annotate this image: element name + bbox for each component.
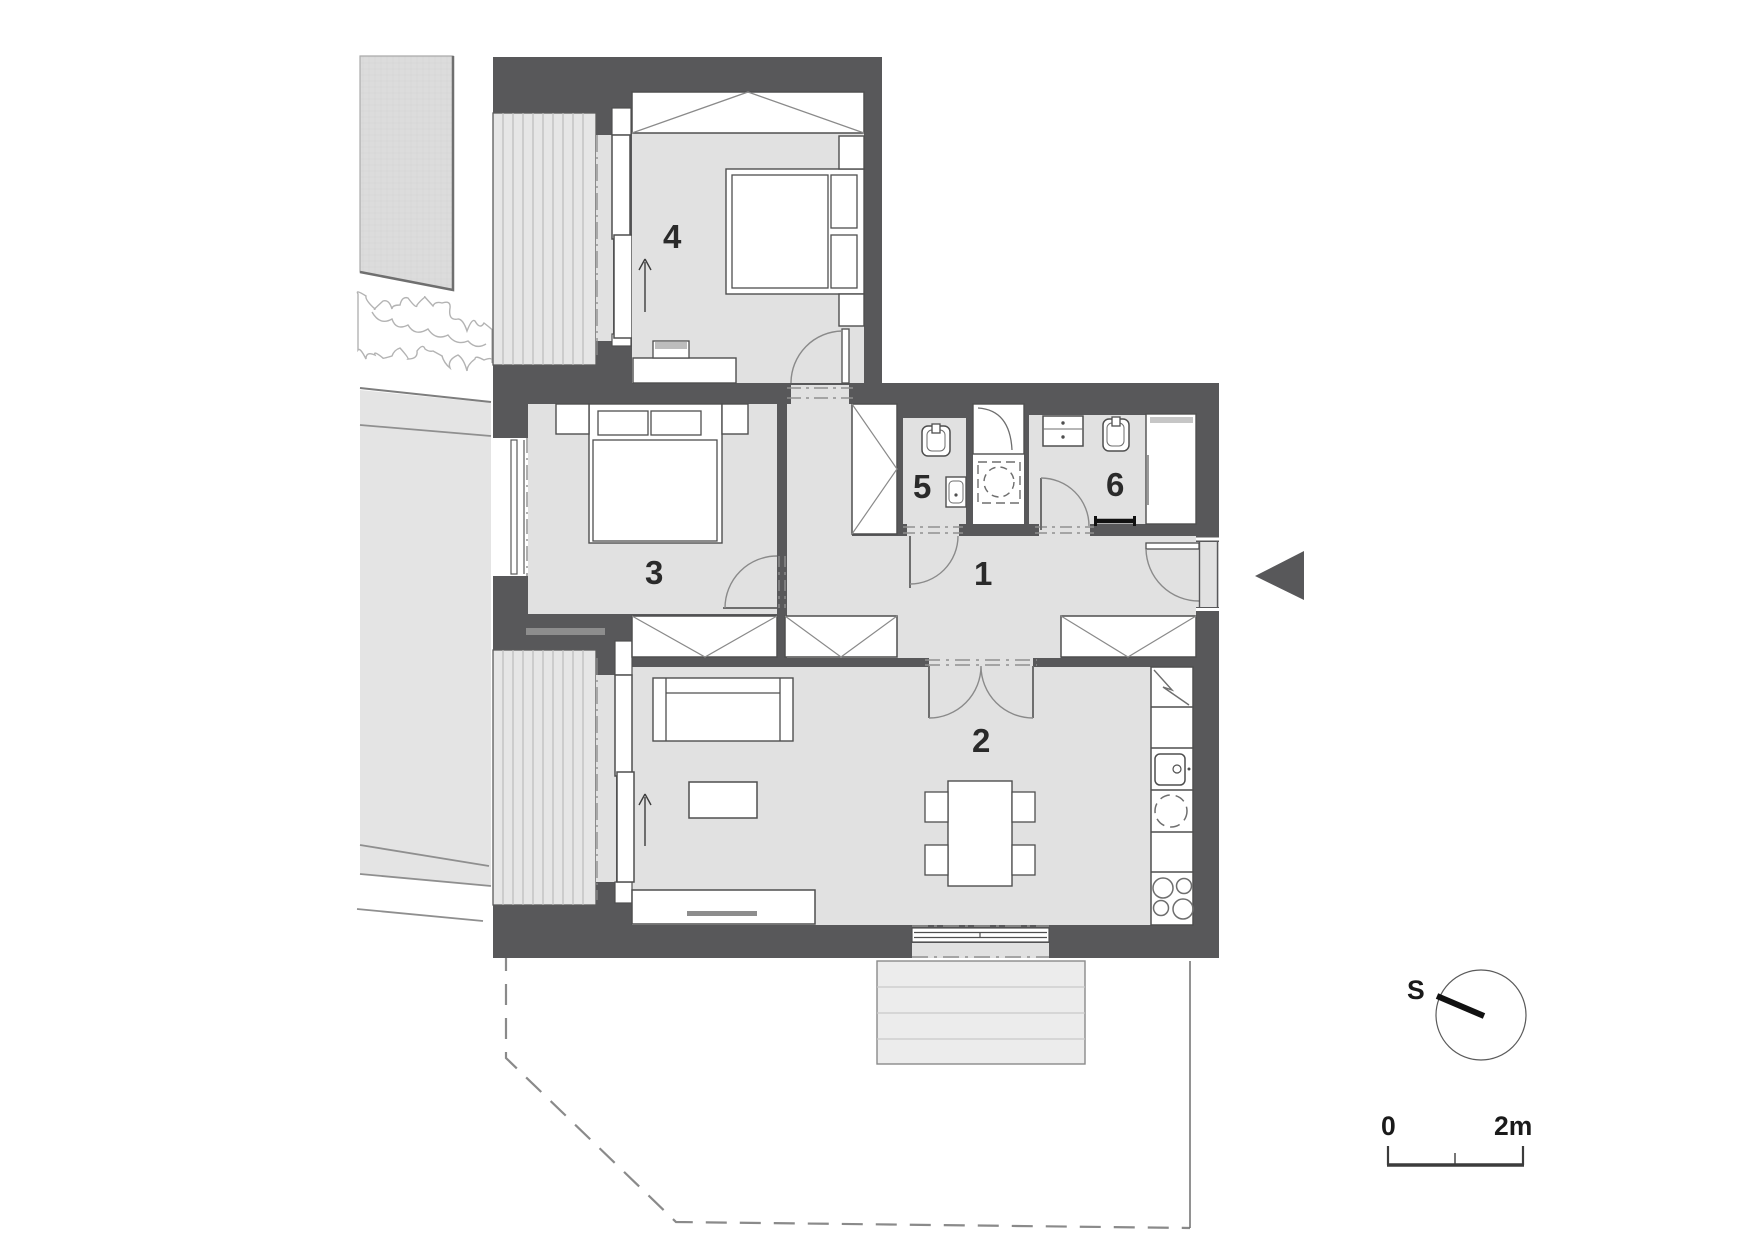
svg-text:2m: 2m xyxy=(1494,1111,1532,1141)
svg-text:5: 5 xyxy=(913,468,931,505)
svg-text:3: 3 xyxy=(645,554,663,591)
svg-text:2: 2 xyxy=(972,722,990,759)
svg-text:4: 4 xyxy=(663,218,682,255)
svg-text:S: S xyxy=(1407,975,1425,1005)
svg-text:1: 1 xyxy=(974,555,992,592)
svg-text:6: 6 xyxy=(1106,466,1124,503)
svg-text:0: 0 xyxy=(1381,1111,1396,1141)
